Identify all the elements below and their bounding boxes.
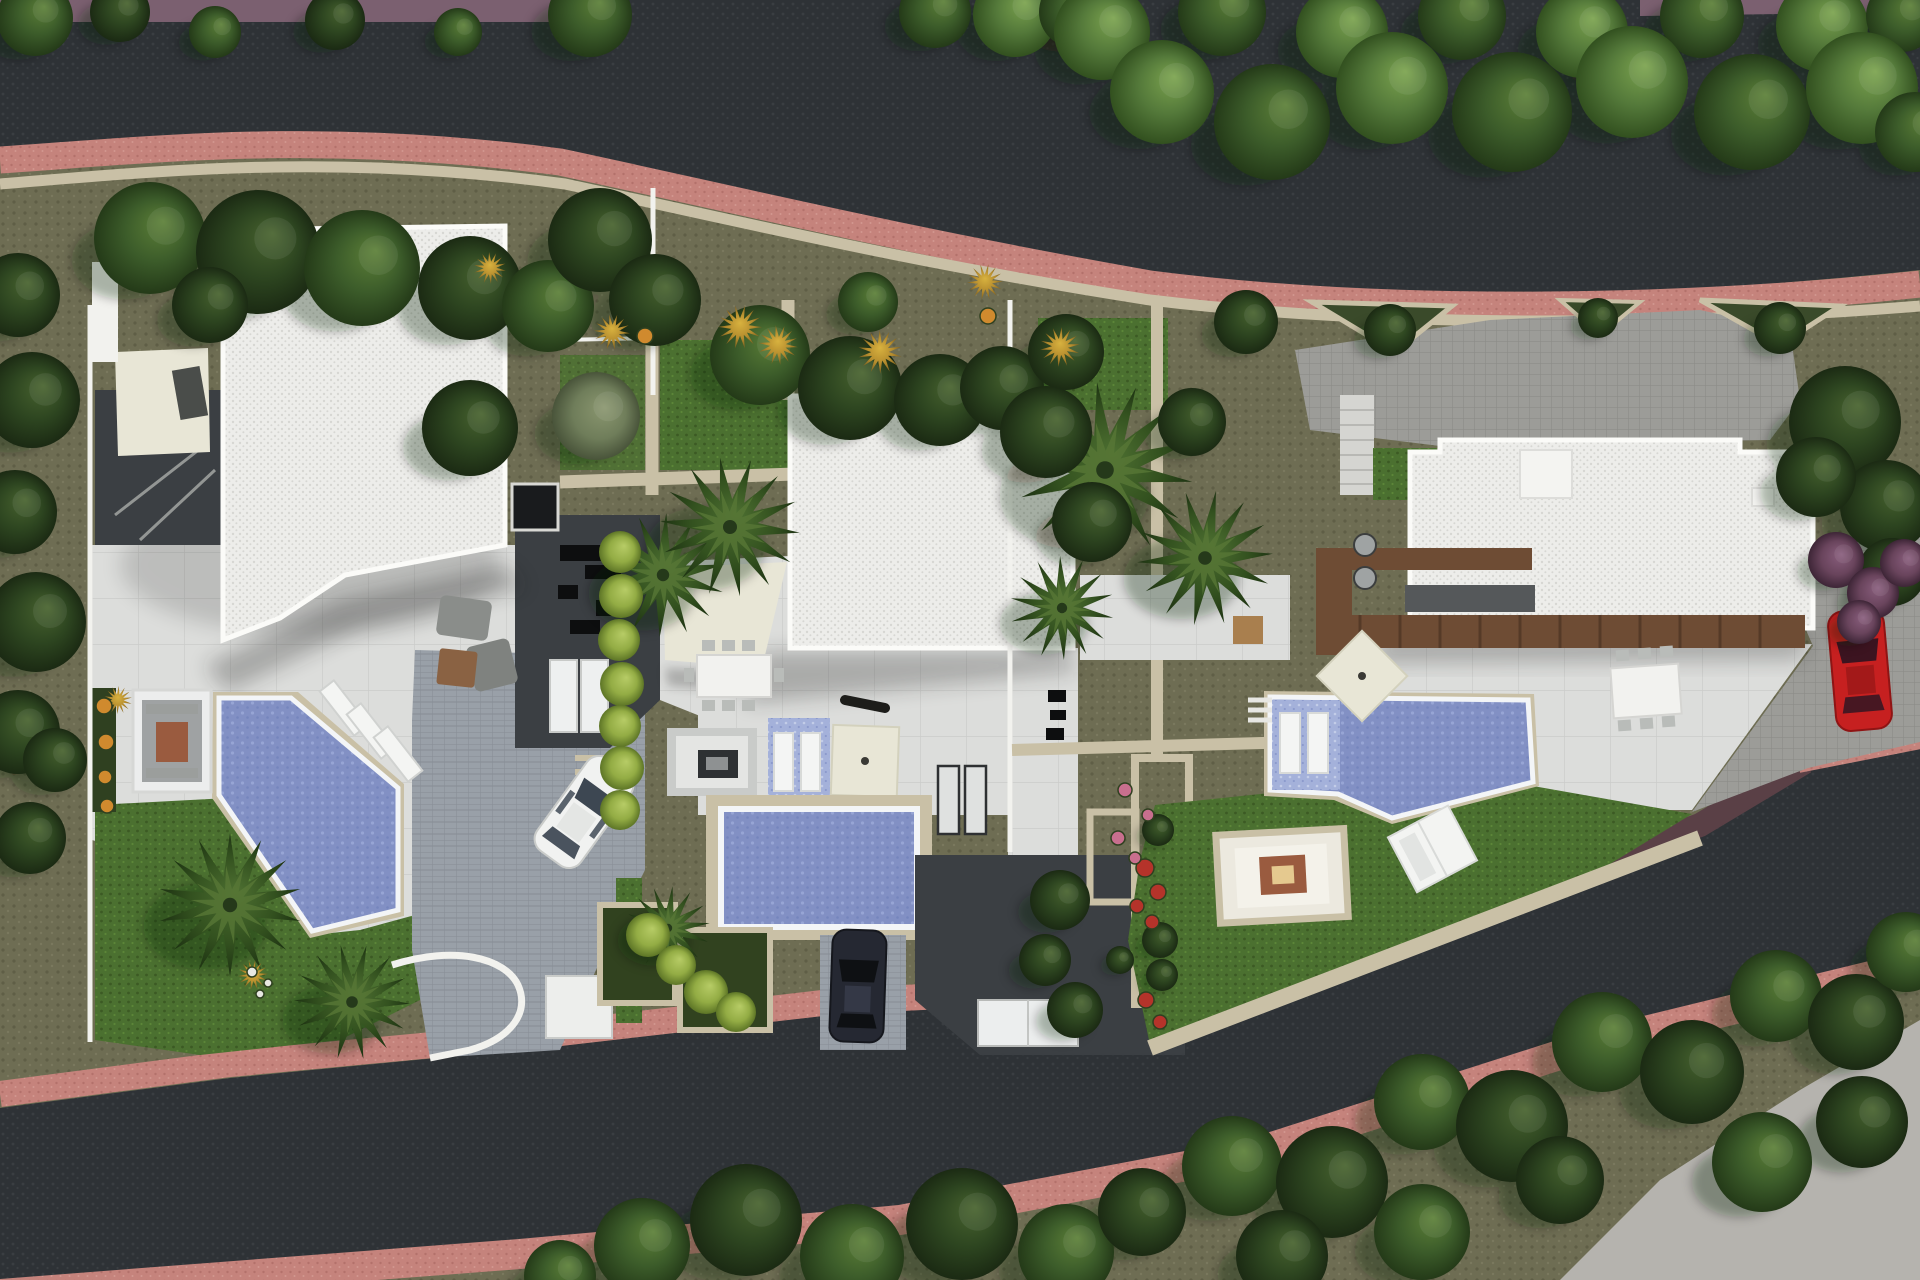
hedge-shrub (600, 746, 644, 790)
palm-crown (1096, 461, 1114, 479)
tree-highlight (29, 373, 62, 406)
tree-highlight (1073, 994, 1092, 1013)
tree-canopy (1182, 1116, 1282, 1216)
tree-highlight (1814, 455, 1841, 482)
flower-cluster (1130, 899, 1144, 913)
palm-crown (346, 996, 358, 1008)
tree-highlight (639, 1219, 672, 1252)
tree-highlight (1159, 930, 1171, 942)
hedge-shrub (600, 790, 640, 830)
tree-highlight (1859, 57, 1897, 95)
tree-highlight (33, 594, 67, 628)
tree-highlight (467, 401, 500, 434)
tree-highlight (1159, 63, 1194, 98)
hedge-shrub (599, 531, 641, 573)
tree-canopy (1837, 600, 1881, 644)
left-sunken-lounge (133, 690, 211, 792)
tree-highlight (1629, 51, 1667, 89)
flower-cluster (1111, 831, 1125, 845)
flower-cluster (98, 770, 112, 784)
tree-highlight (1099, 5, 1132, 38)
tree-canopy (1816, 1076, 1908, 1168)
tree-highlight (847, 359, 882, 394)
tree-highlight (1773, 970, 1804, 1001)
flower-cluster (1129, 852, 1141, 864)
tree-highlight (849, 1227, 884, 1262)
tree-canopy (1754, 302, 1806, 354)
tree-highlight (1279, 1230, 1310, 1261)
tree-highlight (1419, 1205, 1452, 1238)
flower-cluster (980, 308, 996, 324)
left-garage-door-1 (550, 660, 577, 732)
tree-highlight (652, 274, 683, 305)
tree-highlight (1759, 1134, 1793, 1168)
hedge-shrub (599, 574, 643, 618)
tree-highlight (1389, 57, 1427, 95)
palm-crown (723, 520, 737, 534)
tree-highlight (28, 818, 52, 842)
flower-cluster (256, 990, 264, 998)
palm-crown (223, 898, 237, 912)
flower-cluster (1153, 1015, 1167, 1029)
tree-highlight (1834, 544, 1853, 563)
tree-canopy (690, 1164, 802, 1276)
tree-canopy (1640, 1020, 1744, 1124)
tree-canopy (1694, 54, 1810, 170)
tree-canopy (1452, 52, 1572, 172)
scene-canvas (0, 0, 1920, 1280)
tree-highlight (1853, 995, 1886, 1028)
tree-canopy (1578, 298, 1618, 338)
tree-highlight (1269, 90, 1308, 129)
tree-highlight (1749, 80, 1788, 119)
tree-canopy (1516, 1136, 1604, 1224)
tree-canopy (422, 380, 518, 476)
tree-canopy (1158, 388, 1226, 456)
right-sunken-lounge (1216, 829, 1348, 924)
tree-canopy (1374, 1184, 1470, 1280)
tree-canopy (434, 8, 482, 56)
tree-highlight (208, 284, 234, 310)
wing-lounger-1 (938, 766, 959, 834)
tree-highlight (1329, 1151, 1367, 1189)
tree-canopy (906, 1168, 1018, 1280)
tree-highlight (1119, 952, 1129, 962)
tree-highlight (254, 217, 296, 259)
tree-highlight (15, 271, 44, 300)
tree-highlight (866, 285, 886, 305)
tree-highlight (1388, 315, 1406, 333)
tree-highlight (359, 236, 398, 275)
tree-canopy (1214, 290, 1278, 354)
tree-canopy (1364, 304, 1416, 356)
flower-cluster (1118, 783, 1132, 797)
tree-highlight (213, 17, 231, 35)
tree-highlight (53, 742, 75, 764)
tree-highlight (597, 211, 632, 246)
tree-canopy (189, 6, 241, 58)
splash-lounger-2 (801, 733, 820, 791)
tree-canopy (1110, 40, 1214, 144)
tree-highlight (1419, 1075, 1452, 1108)
tree-highlight (1557, 1155, 1587, 1185)
flower-cluster (264, 979, 272, 987)
tree-highlight (1819, 0, 1850, 31)
tree-canopy (1214, 64, 1330, 180)
tree-highlight (959, 1193, 997, 1231)
tree-highlight (1599, 1014, 1633, 1048)
flower-cluster (1142, 809, 1154, 821)
tree-canopy (1030, 870, 1090, 930)
boundary-stairs (1340, 395, 1374, 495)
tree-canopy (1106, 946, 1134, 974)
hedge-shrub (600, 662, 644, 706)
right-roof-block (1520, 450, 1572, 498)
tree-highlight (1157, 821, 1168, 832)
tree-highlight (12, 488, 41, 517)
flower-cluster (1150, 884, 1166, 900)
tree-canopy (1000, 386, 1092, 478)
tree-highlight (1339, 6, 1370, 37)
tree-highlight (743, 1189, 781, 1227)
tree-highlight (1842, 391, 1880, 429)
tree-highlight (1597, 307, 1611, 321)
court-skylight (512, 484, 558, 530)
hedge-shrub (598, 619, 640, 661)
palm-crown (657, 569, 669, 581)
tree-canopy (1047, 982, 1103, 1038)
tree-highlight (1043, 406, 1074, 437)
hedge-shrub (716, 992, 756, 1032)
dark-car (829, 929, 887, 1043)
hedge-shrub (599, 705, 641, 747)
tree-highlight (593, 391, 623, 421)
tree-highlight (1190, 403, 1213, 426)
tree-canopy (1374, 1054, 1470, 1150)
flower-cluster (1138, 992, 1154, 1008)
tree-highlight (1139, 1187, 1169, 1217)
tree-highlight (1229, 1138, 1263, 1172)
tree-highlight (1858, 610, 1873, 625)
tree-canopy (1730, 950, 1822, 1042)
tree-highlight (147, 207, 185, 245)
tree-canopy (1052, 482, 1132, 562)
entry-wood-mat (1233, 616, 1263, 644)
tree-highlight (1859, 1096, 1890, 1127)
tree-highlight (558, 1256, 582, 1280)
tree-highlight (1871, 578, 1889, 596)
tree-canopy (1146, 959, 1178, 991)
flower-cluster (96, 698, 112, 714)
tree-canopy (304, 210, 420, 326)
tree-highlight (1689, 1043, 1724, 1078)
tree-canopy (552, 372, 640, 460)
tree-highlight (1883, 480, 1914, 511)
tree-highlight (1903, 550, 1919, 566)
tree-highlight (1058, 883, 1078, 903)
tree-highlight (333, 3, 353, 23)
middle-lounge-set (667, 728, 757, 796)
tree-highlight (1063, 1225, 1096, 1258)
tree-canopy (838, 272, 898, 332)
tree-highlight (1509, 1095, 1547, 1133)
palm-crown (1198, 551, 1212, 565)
site-plan-render (0, 0, 1920, 1280)
tree-highlight (1161, 966, 1172, 977)
tree-highlight (1508, 78, 1549, 119)
tree-highlight (1043, 945, 1061, 963)
middle-pool (724, 812, 914, 924)
tree-highlight (999, 364, 1028, 393)
splash-lounger-1 (774, 733, 793, 791)
tree-highlight (545, 280, 576, 311)
flower-cluster (637, 328, 653, 344)
tree-canopy (1576, 26, 1688, 138)
tree-highlight (1090, 500, 1117, 527)
tree-canopy (23, 728, 87, 792)
flower-cluster (1145, 915, 1159, 929)
tree-canopy (172, 267, 248, 343)
tree-highlight (1244, 304, 1266, 326)
tree-highlight (1778, 313, 1796, 331)
flower-cluster (247, 967, 257, 977)
tree-canopy (1336, 32, 1448, 144)
wing-lounger-2 (965, 766, 986, 834)
flower-cluster (98, 734, 114, 750)
tree-canopy (1019, 934, 1071, 986)
tree-canopy (1098, 1168, 1186, 1256)
right-splash-lounger-1 (1280, 713, 1300, 773)
palm-crown (1057, 603, 1067, 613)
tree-canopy (1552, 992, 1652, 1092)
tree-highlight (457, 19, 473, 35)
tree-canopy (1712, 1112, 1812, 1212)
tree-canopy (1776, 437, 1856, 517)
flower-cluster (100, 799, 114, 813)
right-splash-lounger-2 (1308, 713, 1328, 773)
